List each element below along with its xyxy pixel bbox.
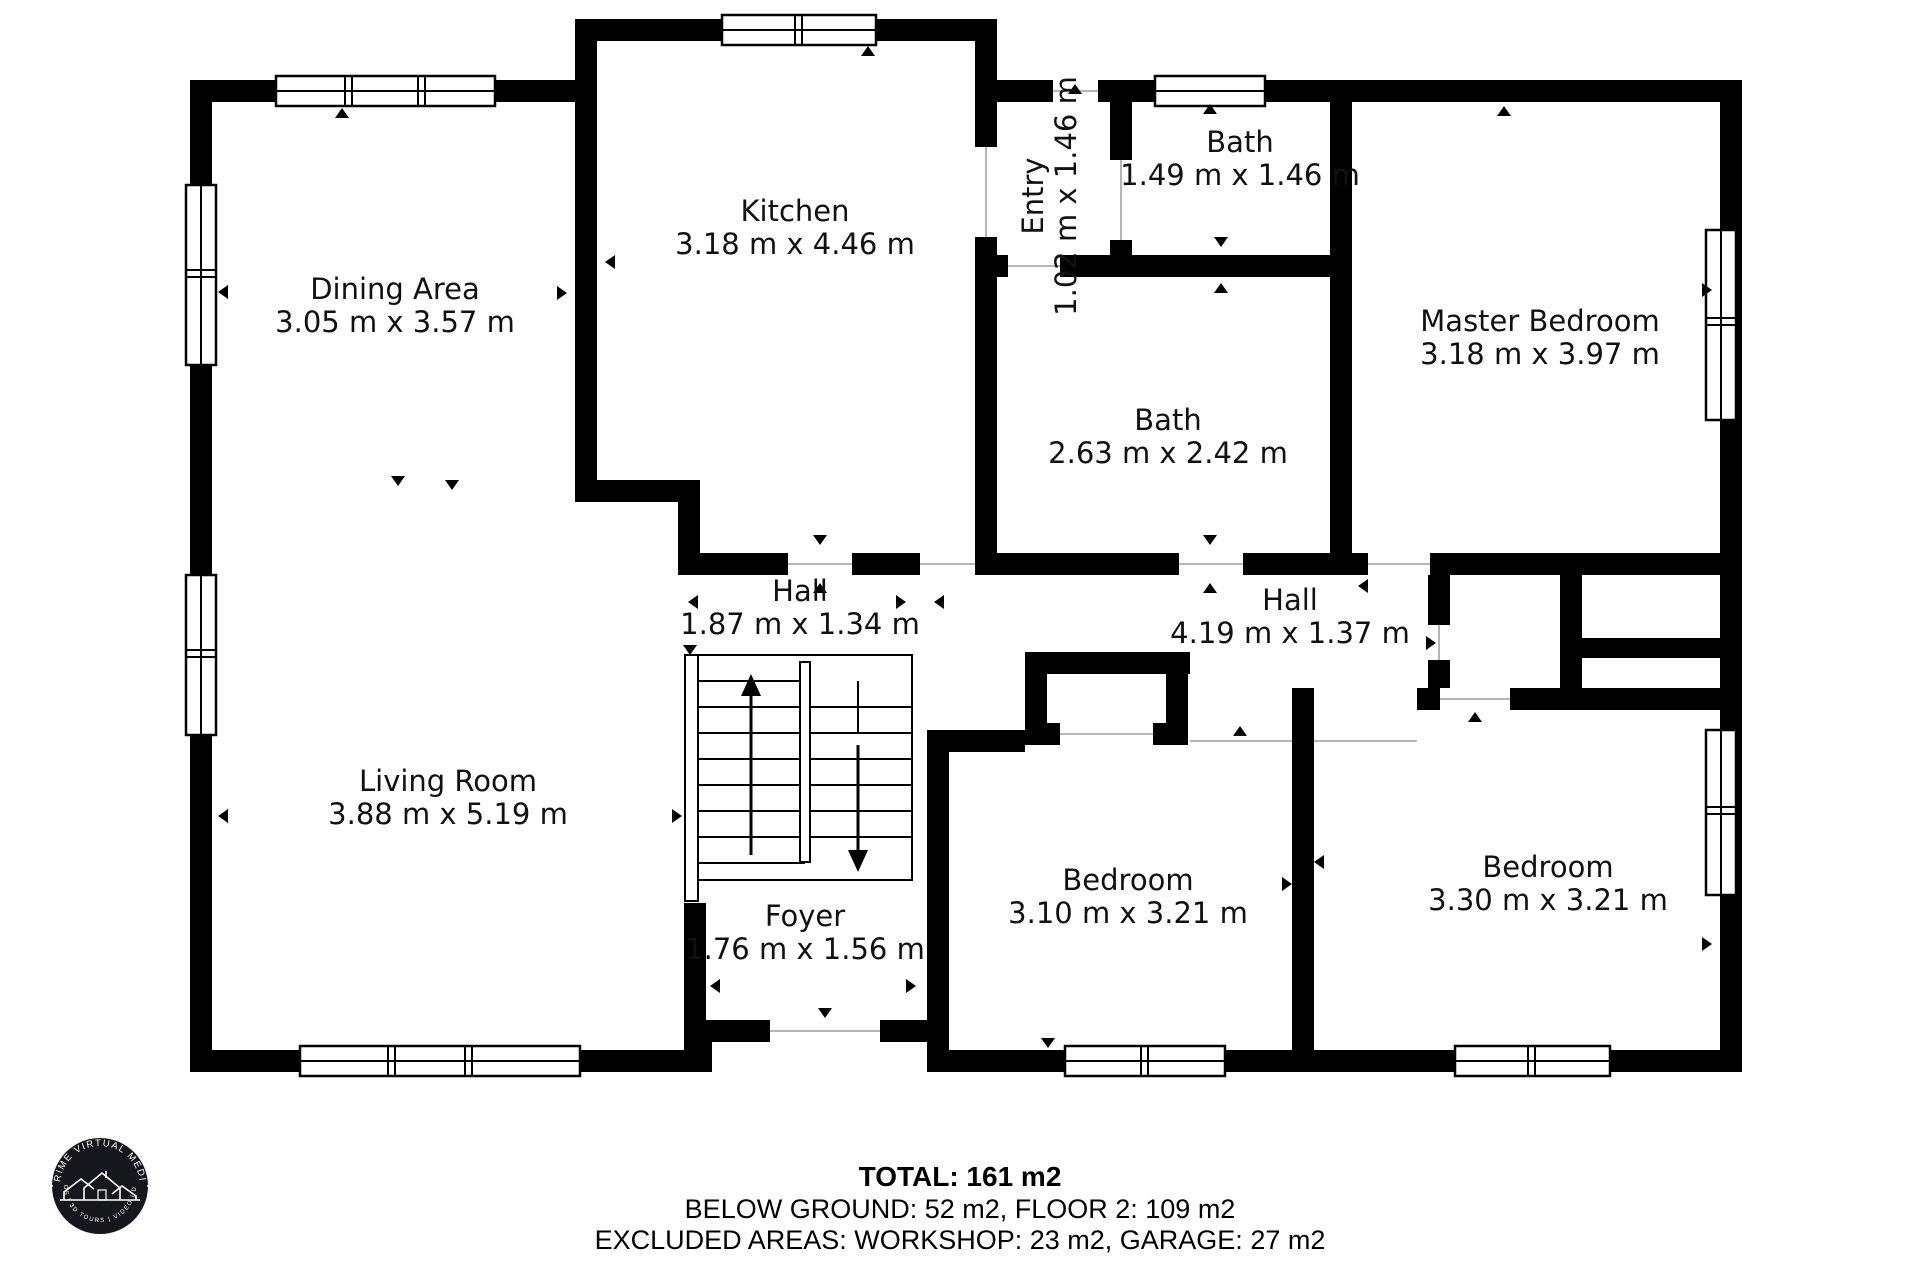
logo-arc-bottom-text: PHOTOS | 3D TOURS | VIDEO | DRONE (0, 0, 138, 1224)
window (722, 15, 876, 45)
room-label-bath-main: Bath 2.63 m x 2.42 m (1048, 404, 1288, 470)
staircase (685, 655, 912, 901)
window (1706, 730, 1736, 895)
room-label-kitchen: Kitchen 3.18 m x 4.46 m (675, 195, 915, 261)
excluded-areas-text: EXCLUDED AREAS: WORKSHOP: 23 m2, GARAGE:… (0, 1225, 1920, 1256)
window (1065, 1046, 1225, 1076)
window (1155, 76, 1265, 106)
room-label-entry: Entry 1.02 m x 1.46 m (1017, 76, 1083, 316)
floorplan-page: PRIME VIRTUAL MEDIA PHOTOS | 3D TOURS | … (0, 0, 1920, 1280)
window (276, 76, 495, 106)
room-label-living-room: Living Room 3.88 m x 5.19 m (328, 765, 568, 831)
footer-summary: TOTAL: 161 m2 BELOW GROUND: 52 m2, FLOOR… (0, 1160, 1920, 1280)
window (300, 1046, 580, 1076)
room-label-master-bedroom: Master Bedroom 3.18 m x 3.97 m (1420, 305, 1660, 371)
room-label-bath-small: Bath 1.49 m x 1.46 m (1120, 126, 1360, 192)
logo-arc-top-text: PRIME VIRTUAL MEDIA (0, 0, 148, 1183)
company-logo: PRIME VIRTUAL MEDIA PHOTOS | 3D TOURS | … (0, 0, 149, 1234)
room-label-bedroom-right: Bedroom 3.30 m x 3.21 m (1428, 851, 1668, 917)
total-area-text: TOTAL: 161 m2 (0, 1160, 1920, 1194)
window (1706, 230, 1736, 420)
room-label-hall-right: Hall 4.19 m x 1.37 m (1170, 584, 1410, 650)
room-label-dining-area: Dining Area 3.05 m x 3.57 m (275, 273, 515, 339)
room-label-bedroom-left: Bedroom 3.10 m x 3.21 m (1008, 864, 1248, 930)
room-label-foyer: Foyer 1.76 m x 1.56 m (685, 900, 925, 966)
area-breakdown-text: BELOW GROUND: 52 m2, FLOOR 2: 109 m2 (0, 1194, 1920, 1225)
window (186, 185, 216, 365)
floorplan-drawing: PRIME VIRTUAL MEDIA PHOTOS | 3D TOURS | … (0, 0, 1920, 1280)
window (1455, 1046, 1610, 1076)
room-label-hall-left: Hall 1.87 m x 1.34 m (680, 575, 920, 641)
window (186, 575, 216, 735)
